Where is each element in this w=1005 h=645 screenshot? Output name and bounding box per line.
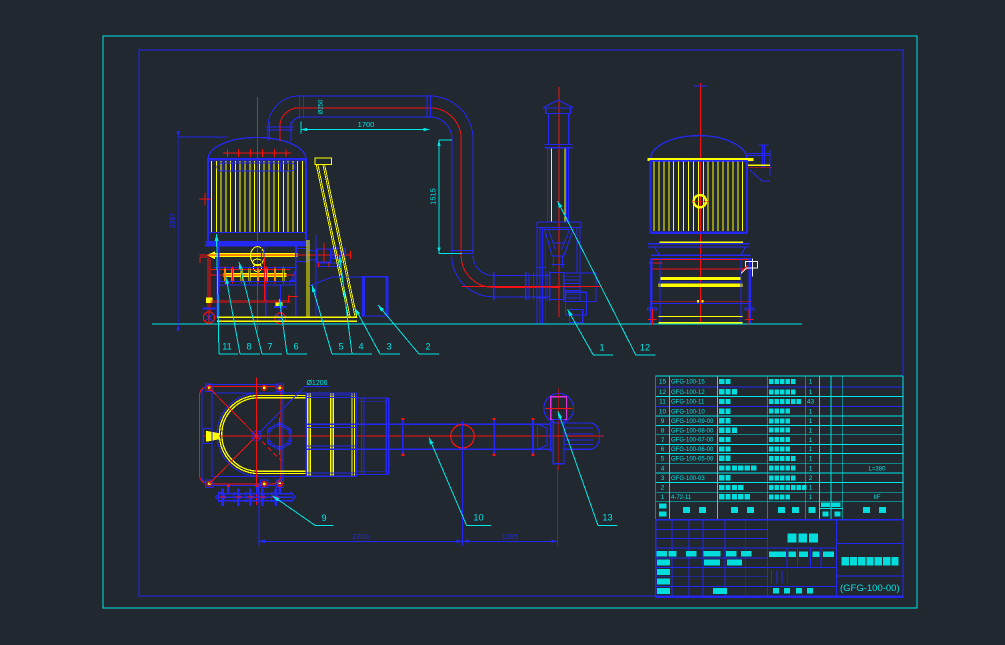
svg-text:(GFG-100-00): (GFG-100-00) <box>840 583 900 594</box>
svg-text:1700: 1700 <box>358 120 375 129</box>
svg-text:12: 12 <box>659 389 667 396</box>
svg-text:GFG-100-07-00: GFG-100-07-00 <box>671 438 714 444</box>
svg-text:1: 1 <box>809 437 813 444</box>
svg-text:GFG-100-15: GFG-100-15 <box>671 380 705 386</box>
svg-text:GFG-100-05-00: GFG-100-05-00 <box>671 457 714 463</box>
svg-text:L=380: L=380 <box>869 466 887 472</box>
svg-text:43: 43 <box>807 399 815 406</box>
svg-text:1: 1 <box>809 456 813 463</box>
svg-text:GFG-100-03: GFG-100-03 <box>671 476 705 482</box>
svg-text:1: 1 <box>809 389 813 396</box>
svg-text:5: 5 <box>338 342 343 352</box>
svg-text:4-72-11: 4-72-11 <box>671 495 692 501</box>
svg-text:5: 5 <box>661 456 665 463</box>
svg-text:GFG-100-10: GFG-100-10 <box>671 409 705 415</box>
svg-text:Ø250: Ø250 <box>319 99 325 114</box>
svg-text:2: 2 <box>661 485 665 492</box>
svg-text:1515: 1515 <box>429 188 438 205</box>
svg-text:11: 11 <box>222 342 232 352</box>
svg-text:GFG-100-06-00: GFG-100-06-00 <box>671 447 714 453</box>
svg-text:12: 12 <box>640 343 650 353</box>
svg-text:1: 1 <box>599 343 604 353</box>
svg-text:9: 9 <box>661 418 665 425</box>
svg-text:4: 4 <box>358 342 363 352</box>
svg-text:1: 1 <box>809 446 813 453</box>
svg-text:9: 9 <box>321 513 326 523</box>
svg-text:GFG-100-11: GFG-100-11 <box>671 400 705 406</box>
svg-text:4: 4 <box>661 465 665 472</box>
svg-text:1: 1 <box>809 494 813 501</box>
svg-text:1: 1 <box>809 427 813 434</box>
svg-text:GFG-100-12: GFG-100-12 <box>671 390 705 396</box>
svg-text:2700: 2700 <box>352 532 369 541</box>
svg-text:1: 1 <box>809 465 813 472</box>
svg-text:6: 6 <box>661 446 665 453</box>
svg-text:IIF: IIF <box>874 495 881 501</box>
svg-text:2: 2 <box>809 475 813 482</box>
svg-text:GFG-100-08-00: GFG-100-08-00 <box>671 428 714 434</box>
svg-text:3: 3 <box>386 342 391 352</box>
svg-text:2387: 2387 <box>170 213 177 229</box>
svg-text:1: 1 <box>661 494 665 501</box>
svg-text:8: 8 <box>246 342 251 352</box>
svg-text:8: 8 <box>661 427 665 434</box>
svg-text:6: 6 <box>293 342 298 352</box>
svg-text:13: 13 <box>602 513 612 523</box>
svg-text:1: 1 <box>809 408 813 415</box>
svg-text:15: 15 <box>659 379 667 386</box>
svg-text:11: 11 <box>659 399 666 406</box>
svg-text:1: 1 <box>809 485 813 492</box>
svg-text:10: 10 <box>473 513 483 523</box>
svg-text:7: 7 <box>267 342 272 352</box>
svg-text:2: 2 <box>425 342 430 352</box>
svg-text:7: 7 <box>661 437 665 444</box>
svg-text:1: 1 <box>809 379 813 386</box>
svg-text:3: 3 <box>661 475 665 482</box>
svg-text:GFG-100-09-00: GFG-100-09-00 <box>671 419 714 425</box>
svg-text:Ø1206: Ø1206 <box>306 380 327 387</box>
svg-text:10: 10 <box>659 408 667 415</box>
svg-text:1285: 1285 <box>502 532 519 541</box>
svg-text:1: 1 <box>809 418 813 425</box>
